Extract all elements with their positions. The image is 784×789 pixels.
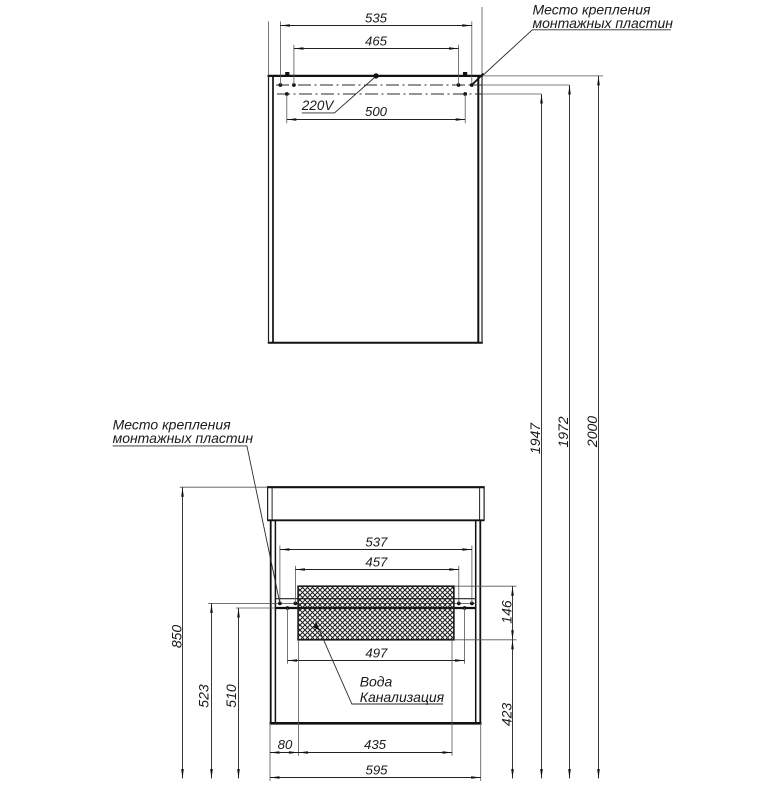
svg-text:монтажных пластин: монтажных пластин bbox=[113, 430, 254, 446]
svg-text:80: 80 bbox=[278, 737, 293, 752]
svg-text:146: 146 bbox=[498, 600, 514, 624]
svg-text:2000: 2000 bbox=[584, 416, 600, 448]
svg-text:1947: 1947 bbox=[527, 422, 543, 454]
svg-text:850: 850 bbox=[169, 625, 185, 649]
svg-text:1972: 1972 bbox=[555, 416, 571, 447]
svg-text:595: 595 bbox=[365, 762, 388, 777]
svg-text:435: 435 bbox=[364, 737, 387, 752]
svg-text:535: 535 bbox=[365, 11, 388, 26]
svg-text:монтажных пластин: монтажных пластин bbox=[533, 15, 674, 31]
svg-text:220V: 220V bbox=[301, 98, 336, 113]
svg-text:497: 497 bbox=[365, 645, 388, 660]
svg-text:510: 510 bbox=[223, 684, 239, 708]
svg-text:537: 537 bbox=[365, 534, 388, 549]
svg-text:Канализация: Канализация bbox=[360, 689, 445, 705]
svg-text:423: 423 bbox=[498, 703, 514, 727]
svg-text:457: 457 bbox=[365, 555, 388, 570]
svg-text:523: 523 bbox=[196, 684, 212, 708]
svg-text:Вода: Вода bbox=[360, 674, 393, 690]
svg-text:500: 500 bbox=[365, 104, 388, 119]
svg-text:465: 465 bbox=[365, 34, 388, 49]
